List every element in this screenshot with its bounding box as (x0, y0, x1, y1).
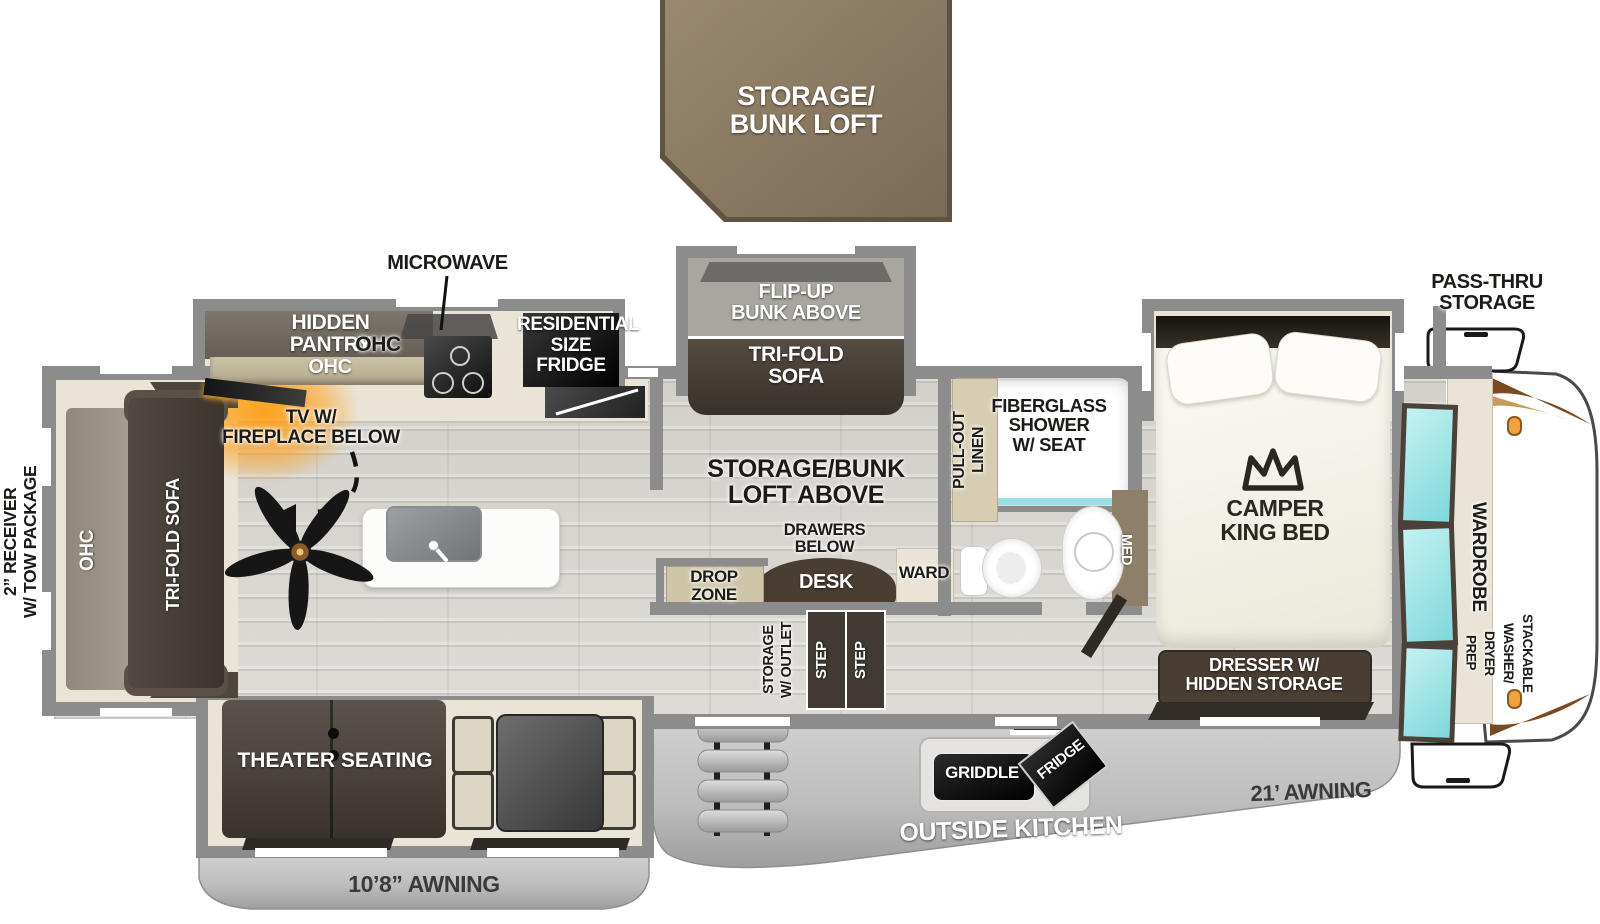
storage-bunk-loft-box (660, 0, 952, 222)
theater-seating (222, 700, 446, 838)
pantry-ohc-cabinet (210, 357, 432, 385)
cupholder-icon (328, 728, 339, 739)
dresser (1158, 650, 1372, 706)
wardrobe-mirror (1398, 403, 1458, 527)
residential-fridge (523, 313, 619, 387)
cap-handle-bottom (1508, 690, 1521, 708)
island-sink (386, 506, 482, 562)
step-box (845, 610, 886, 710)
dinette-chair (452, 772, 494, 830)
cap-handle-top (1508, 417, 1521, 435)
awning-left-band (199, 856, 649, 909)
burner-icon (450, 346, 470, 366)
burner-icon (462, 372, 484, 394)
dinette-table (496, 714, 604, 832)
wardrobe-mirror (1398, 523, 1458, 647)
faucet-icon (428, 540, 439, 551)
toilet-bowl-inner (996, 552, 1026, 584)
rear-tri-fold-sofa (128, 398, 224, 688)
rear-ohc-cabinet (66, 408, 130, 690)
bunk-overlay (688, 258, 904, 339)
wardrobe-mirror (1398, 643, 1457, 743)
outside-griddle (932, 752, 1036, 802)
pillow (1273, 330, 1384, 404)
floorplan-stage: STORAGE/ BUNK LOFT RESIDENTIAL SIZE FRID… (0, 0, 1600, 924)
pull-out-linen-cabinet (952, 378, 998, 522)
fridge-footprint (545, 386, 645, 418)
hidden-pantry-cabinet (205, 311, 433, 359)
bath-sink-bowl (1074, 532, 1114, 572)
dinette-chair (452, 716, 494, 774)
step-box (806, 610, 847, 710)
cupholder-icon (328, 750, 339, 761)
front-cap (1477, 371, 1597, 742)
bunk-tri-fold-sofa (688, 339, 904, 415)
burner-icon (432, 372, 454, 394)
theater-seam (330, 700, 333, 838)
